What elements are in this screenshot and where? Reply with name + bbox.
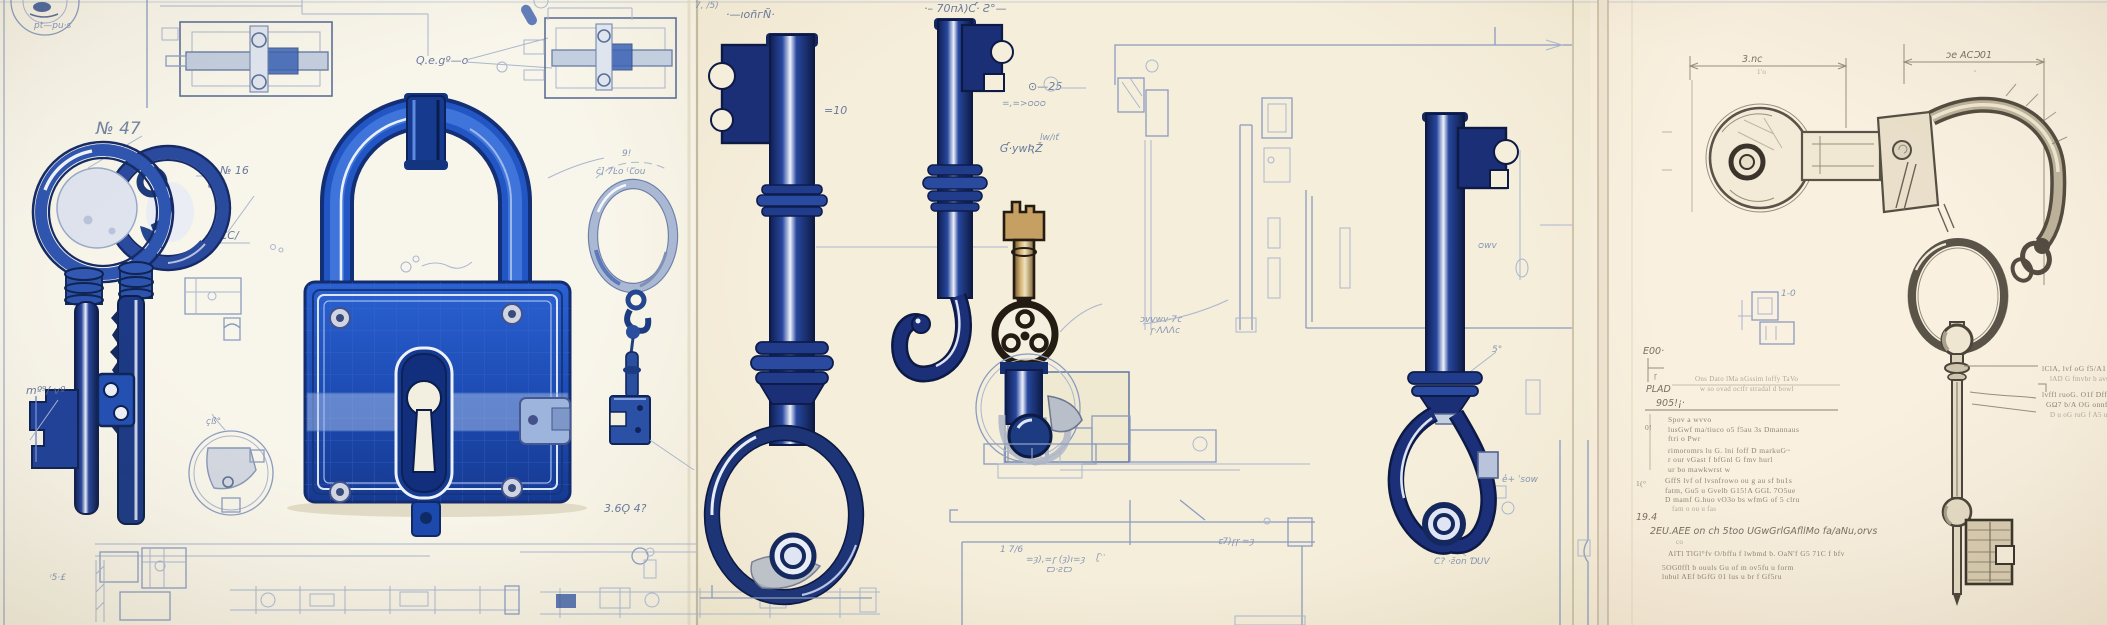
- blueprint-canvas: pt—pu·s № 47 Q.e.gº—o № 16: [0, 0, 2107, 625]
- paper-vignette: [0, 0, 2107, 625]
